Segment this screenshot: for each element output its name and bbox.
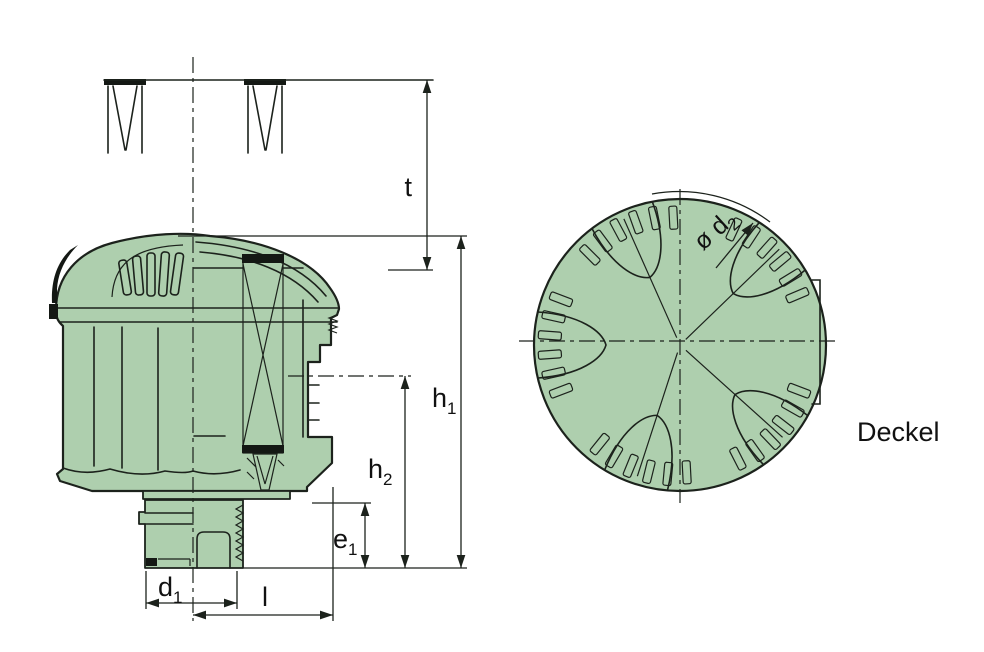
dim-label-t: t xyxy=(404,172,412,202)
mounting-bracket-left xyxy=(104,79,146,153)
dim-label-h2: h2 xyxy=(368,454,393,489)
mounting-bracket-right xyxy=(244,79,286,153)
main-section-view xyxy=(49,57,411,621)
air-filter-drawing: t h1 h2 e1 d1 l xyxy=(0,0,984,652)
technical-drawing-page: t h1 h2 e1 d1 l xyxy=(0,0,984,652)
element-top-seal xyxy=(242,254,284,263)
tube-dark-corner xyxy=(146,558,157,566)
bracket-cone-lines xyxy=(108,86,142,153)
cover-dark-lip xyxy=(49,304,58,319)
cover-top-view: ø d2 Deckel xyxy=(519,189,940,503)
bottom-flange-step xyxy=(143,491,290,499)
dim-label-e1: e1 xyxy=(333,524,358,559)
dim-label-d1: d1 xyxy=(158,572,183,607)
filter-body-outline xyxy=(56,234,339,491)
element-bottom-seal xyxy=(242,445,284,453)
bracket-cone-lines xyxy=(248,86,282,153)
cover-caption: Deckel xyxy=(857,417,940,447)
dim-label-l: l xyxy=(262,582,268,612)
dim-label-h1: h1 xyxy=(432,383,457,418)
